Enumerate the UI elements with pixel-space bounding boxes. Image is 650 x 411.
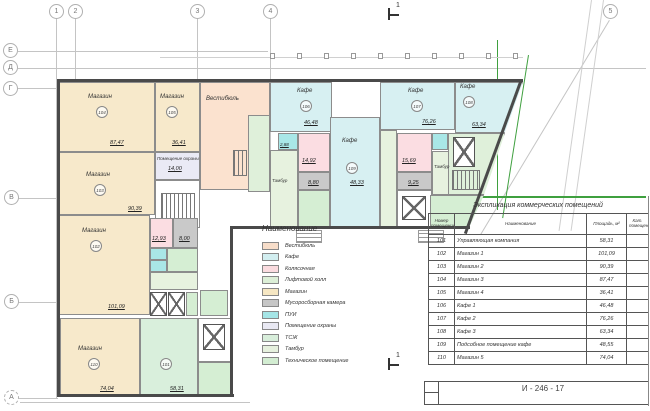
cell-name: Магазин 3 bbox=[455, 274, 587, 287]
room-label-cafe-109: Кафе bbox=[342, 138, 357, 144]
room-area-stroller-1: 12,93 bbox=[152, 236, 166, 242]
room-area-refuse-1: 8,00 bbox=[179, 236, 190, 242]
header-room-name: Наименование bbox=[455, 214, 587, 235]
stairs-vestibule bbox=[233, 150, 247, 176]
titleblock-line-top bbox=[424, 381, 648, 382]
room-stroller-2 bbox=[298, 133, 330, 172]
legend-swatch bbox=[262, 311, 279, 319]
cell-num: 106 bbox=[429, 300, 455, 313]
axis-label: А bbox=[9, 394, 14, 401]
axis-bubble-3: 3 bbox=[190, 4, 205, 19]
cell-area: 48,55 bbox=[587, 339, 627, 352]
elevator-shaft-2 bbox=[168, 292, 185, 316]
cell-area: 58,31 bbox=[587, 235, 627, 248]
cell-num: 105 bbox=[429, 287, 455, 300]
room-number-105: 105 bbox=[166, 106, 178, 118]
wall-wing-right bbox=[230, 228, 233, 396]
room-pui-right bbox=[432, 133, 448, 150]
legend-item: Кафе bbox=[262, 252, 394, 264]
cell-name: Кафе 3 bbox=[455, 326, 587, 339]
cell-cat bbox=[627, 261, 649, 274]
axis-label: Е bbox=[8, 47, 13, 54]
room-pui-left-b bbox=[150, 260, 167, 272]
axis-bubble-5: 5 bbox=[603, 4, 618, 19]
legend-label: ПУИ bbox=[285, 312, 296, 318]
pilaster bbox=[324, 53, 329, 59]
titleblock-line-bottom bbox=[424, 404, 648, 405]
room-tambour-mid-left bbox=[270, 150, 298, 228]
table-row: 105Магазин 436,41 bbox=[429, 287, 649, 300]
document-number: И - 246 - 17 bbox=[438, 384, 648, 393]
cell-num: 104 bbox=[429, 274, 455, 287]
axis-label: 3 bbox=[196, 8, 200, 15]
cell-area: 90,39 bbox=[587, 261, 627, 274]
room-number-106: 106 bbox=[300, 100, 312, 112]
pilaster bbox=[270, 53, 275, 59]
room-tech-left-1 bbox=[167, 248, 198, 272]
room-area-103: 90,39 bbox=[128, 206, 142, 212]
legend-item: Вестибюль bbox=[262, 240, 394, 252]
table-header-row: Номер помещения Наименование Площадь, м²… bbox=[429, 214, 649, 235]
legend-item: Техническое помещение bbox=[262, 355, 394, 367]
table-row: 103Магазин 290,39 bbox=[429, 261, 649, 274]
titleblock-left-edge bbox=[424, 381, 425, 404]
legend-title: Наименование bbox=[262, 224, 394, 233]
legend-label: Техническое помещение bbox=[285, 358, 348, 364]
axis-line-a bbox=[18, 398, 58, 399]
legend-item: ПУИ bbox=[262, 309, 394, 321]
room-stroller-3 bbox=[397, 133, 432, 172]
axis-label: 2 bbox=[74, 8, 78, 15]
cell-num: 103 bbox=[429, 261, 455, 274]
axis-bubble-e: Е bbox=[3, 43, 18, 58]
room-area-107: 76,26 bbox=[422, 119, 436, 125]
room-number-107: 107 bbox=[411, 100, 423, 112]
cell-cat bbox=[627, 248, 649, 261]
table-row: 104Магазин 387,47 bbox=[429, 274, 649, 287]
room-label-shop-103: Магазин bbox=[86, 172, 110, 178]
table-row: 107Кафе 276,26 bbox=[429, 313, 649, 326]
axis-label: Д bbox=[8, 64, 13, 71]
room-area-109: 48,33 bbox=[350, 180, 364, 186]
elevator-shaft-1 bbox=[150, 292, 167, 316]
wall-left bbox=[57, 79, 60, 397]
cell-name: Магазин 4 bbox=[455, 287, 587, 300]
elevator-shaft-5 bbox=[453, 137, 475, 167]
axis-label: Б bbox=[9, 298, 14, 305]
room-refuse-1 bbox=[173, 218, 198, 248]
room-area-refuse-3: 9,25 bbox=[408, 180, 419, 186]
cell-cat bbox=[627, 235, 649, 248]
cell-area: 46,48 bbox=[587, 300, 627, 313]
cell-name: Магазин 2 bbox=[455, 261, 587, 274]
drawing-sheet: 1 2 3 4 5 Е Д Г В Б А 1 1 Магазин 104 87… bbox=[0, 0, 650, 411]
cell-area: 101,09 bbox=[587, 248, 627, 261]
axis-bubble-1: 1 bbox=[49, 4, 64, 19]
legend-item: Тамбур bbox=[262, 344, 394, 356]
cell-name: Магазин 5 bbox=[455, 352, 587, 365]
room-tech-bottom bbox=[198, 362, 232, 397]
room-label-security: Помещение охраны bbox=[157, 156, 199, 161]
room-area-106: 46,48 bbox=[304, 120, 318, 126]
room-area-security: 14,00 bbox=[168, 166, 182, 172]
cell-cat bbox=[627, 352, 649, 365]
explication-table: Экспликация коммерческих помещений Номер… bbox=[428, 202, 648, 365]
room-lift-hall-left bbox=[248, 115, 270, 192]
titleblock-left-box-line bbox=[424, 392, 438, 393]
legend-item: ТСЖ bbox=[262, 332, 394, 344]
room-area-105: 36,41 bbox=[172, 140, 186, 146]
room-label-shop-102: Магазин bbox=[82, 228, 106, 234]
explication-title: Экспликация коммерческих помещений bbox=[428, 202, 648, 209]
room-tambour-mid bbox=[380, 130, 397, 228]
room-number-110: 110 bbox=[88, 358, 100, 370]
cell-num: 102 bbox=[429, 248, 455, 261]
header-room-category: Кат. помещения bbox=[627, 214, 649, 235]
cell-num: 101 bbox=[429, 235, 455, 248]
table-row: 109Подсобное помещение кафе48,55 bbox=[429, 339, 649, 352]
cell-cat bbox=[627, 313, 649, 326]
legend-label: Лифтовой холл bbox=[285, 277, 326, 283]
legend-item: Колясочная bbox=[262, 263, 394, 275]
pilaster bbox=[351, 53, 356, 59]
room-number-101: 101 bbox=[160, 358, 172, 370]
wall-top bbox=[57, 79, 523, 82]
sheet-frame-right bbox=[648, 196, 649, 406]
legend-swatch bbox=[262, 253, 279, 261]
room-label-tambour-1: Тамбур bbox=[272, 178, 287, 183]
axis-label: 5 bbox=[609, 8, 613, 15]
room-number-104: 104 bbox=[96, 106, 108, 118]
axis-label: 1 bbox=[55, 8, 59, 15]
room-pui-left-a bbox=[150, 248, 167, 260]
cell-area: 74,04 bbox=[587, 352, 627, 365]
axis-label: Г bbox=[9, 85, 13, 92]
legend-label: Колясочная bbox=[285, 266, 315, 272]
legend: Наименование Вестибюль Кафе Колясочная Л… bbox=[262, 224, 394, 367]
cell-cat bbox=[627, 274, 649, 287]
elevator-shaft-3 bbox=[203, 324, 225, 350]
legend-label: Вестибюль bbox=[285, 243, 315, 249]
explication-grid: Номер помещения Наименование Площадь, м²… bbox=[428, 213, 649, 365]
legend-swatch bbox=[262, 334, 279, 342]
cell-num: 107 bbox=[429, 313, 455, 326]
legend-item: Мусоросборная камера bbox=[262, 298, 394, 310]
room-label-shop-104: Магазин bbox=[88, 94, 112, 100]
room-101-management bbox=[140, 318, 198, 397]
cell-area: 63,34 bbox=[587, 326, 627, 339]
legend-swatch bbox=[262, 322, 279, 330]
cell-name: Кафе 1 bbox=[455, 300, 587, 313]
stairs-right bbox=[452, 170, 480, 190]
pilaster bbox=[432, 53, 437, 59]
legend-swatch bbox=[262, 288, 279, 296]
axis-bubble-4: 4 bbox=[263, 4, 278, 19]
canopy-line bbox=[160, 57, 523, 58]
room-label-tambour-2: Тамбур bbox=[434, 164, 449, 169]
room-number-109: 109 bbox=[346, 162, 358, 174]
cell-area: 87,47 bbox=[587, 274, 627, 287]
cell-cat bbox=[627, 287, 649, 300]
room-stroller-1 bbox=[150, 218, 173, 248]
room-area-refuse-2: 8,80 bbox=[308, 180, 319, 186]
room-tech-left-3 bbox=[200, 290, 228, 316]
room-tech-mid bbox=[298, 190, 330, 228]
axis-bubble-2: 2 bbox=[68, 4, 83, 19]
room-area-110: 74,04 bbox=[100, 386, 114, 392]
cell-name: Кафе 2 bbox=[455, 313, 587, 326]
room-label-cafe-108: Кафе bbox=[460, 84, 475, 90]
legend-label: Кафе bbox=[285, 254, 299, 260]
axis-bubble-a: А bbox=[4, 390, 19, 405]
header-room-area: Площадь, м² bbox=[587, 214, 627, 235]
room-area-104: 87,47 bbox=[110, 140, 124, 146]
stairs-left bbox=[161, 193, 195, 221]
header-room-number: Номер помещения bbox=[429, 214, 455, 235]
elevator-shaft-4 bbox=[402, 196, 426, 220]
table-row: 102Магазин 1101,09 bbox=[429, 248, 649, 261]
pilaster bbox=[405, 53, 410, 59]
cell-cat bbox=[627, 339, 649, 352]
legend-item: Лифтовой холл bbox=[262, 275, 394, 287]
legend-swatch bbox=[262, 276, 279, 284]
axis-bubble-d: Д bbox=[3, 60, 18, 75]
axis-bubble-b: Б bbox=[4, 294, 19, 309]
axis-label: В bbox=[9, 194, 14, 201]
room-label-shop-110: Магазин bbox=[78, 346, 102, 352]
room-tambour-left bbox=[150, 272, 198, 290]
pilaster bbox=[513, 53, 518, 59]
cell-cat bbox=[627, 326, 649, 339]
pilaster bbox=[378, 53, 383, 59]
legend-swatch bbox=[262, 265, 279, 273]
table-row: 101Управляющая компания58,31 bbox=[429, 235, 649, 248]
table-row: 110Магазин 574,04 bbox=[429, 352, 649, 365]
cell-name: Магазин 1 bbox=[455, 248, 587, 261]
table-row: 108Кафе 363,34 bbox=[429, 326, 649, 339]
wall-bottom bbox=[57, 394, 234, 397]
room-area-pui: 2,88 bbox=[280, 142, 289, 147]
bottom-dimension-line bbox=[20, 402, 250, 403]
axis-line-d bbox=[18, 68, 646, 69]
cell-num: 108 bbox=[429, 326, 455, 339]
room-area-101: 58,31 bbox=[170, 386, 184, 392]
section-label-bottom: 1 bbox=[396, 352, 400, 359]
room-area-108: 63,34 bbox=[472, 122, 486, 128]
pilaster bbox=[297, 53, 302, 59]
pilaster bbox=[486, 53, 491, 59]
cell-area: 76,26 bbox=[587, 313, 627, 326]
legend-swatch bbox=[262, 357, 279, 365]
legend-item: Помещение охраны bbox=[262, 321, 394, 333]
legend-label: ТСЖ bbox=[285, 335, 297, 341]
cell-name: Подсобное помещение кафе bbox=[455, 339, 587, 352]
legend-swatch bbox=[262, 345, 279, 353]
room-number-103: 103 bbox=[94, 184, 106, 196]
room-label-cafe-106: Кафе bbox=[297, 88, 312, 94]
legend-label: Тамбур bbox=[285, 346, 304, 352]
pilaster bbox=[459, 53, 464, 59]
table-row: 106Кафе 146,48 bbox=[429, 300, 649, 313]
legend-label: Магазин bbox=[285, 289, 307, 295]
room-number-102: 102 bbox=[90, 240, 102, 252]
section-mark-top-arm bbox=[390, 14, 399, 16]
room-number-108: 108 bbox=[463, 96, 475, 108]
legend-label: Помещение охраны bbox=[285, 323, 336, 329]
cell-num: 109 bbox=[429, 339, 455, 352]
axis-bubble-g: Г bbox=[3, 81, 18, 96]
legend-swatch bbox=[262, 299, 279, 307]
room-tech-left-2 bbox=[186, 292, 198, 316]
section-label-top: 1 bbox=[396, 2, 400, 9]
cell-num: 110 bbox=[429, 352, 455, 365]
cell-area: 36,41 bbox=[587, 287, 627, 300]
cell-name: Управляющая компания bbox=[455, 235, 587, 248]
axis-label: 4 bbox=[269, 8, 273, 15]
axis-line-b bbox=[18, 302, 58, 303]
room-label-shop-105: Магазин bbox=[160, 94, 184, 100]
room-area-stroller-3: 15,69 bbox=[402, 158, 416, 164]
room-label-vestibule: Вестибюль bbox=[206, 96, 239, 102]
room-area-stroller-2: 14,92 bbox=[302, 158, 316, 164]
axis-line-v bbox=[18, 198, 58, 199]
cell-cat bbox=[627, 300, 649, 313]
axis-bubble-v: В bbox=[4, 190, 19, 205]
legend-label: Мусоросборная камера bbox=[285, 300, 345, 306]
room-label-cafe-107: Кафе bbox=[408, 88, 423, 94]
room-shop-104 bbox=[57, 82, 155, 152]
legend-swatch bbox=[262, 242, 279, 250]
room-area-102: 101,09 bbox=[108, 304, 125, 310]
legend-item: Магазин bbox=[262, 286, 394, 298]
